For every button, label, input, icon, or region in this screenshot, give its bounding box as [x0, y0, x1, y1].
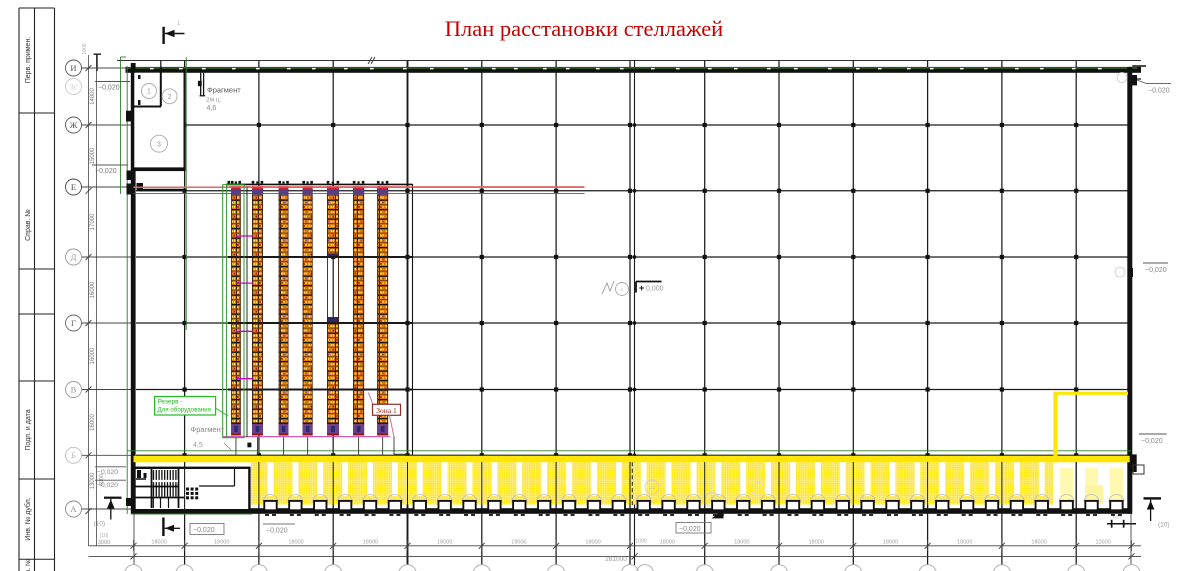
svg-text:Инв. № дубл.: Инв. № дубл. — [24, 497, 32, 540]
svg-text:18000: 18000 — [214, 540, 229, 546]
svg-text:−0,020: −0,020 — [1148, 88, 1170, 95]
svg-text:2м ц.: 2м ц. — [206, 96, 222, 103]
svg-text:Б: Б — [71, 450, 76, 460]
svg-text:3000: 3000 — [98, 540, 110, 546]
svg-text:3: 3 — [157, 141, 161, 148]
svg-text:−0,020: −0,020 — [266, 528, 288, 535]
svg-text:18000: 18000 — [1031, 540, 1046, 546]
svg-text:−0,020: −0,020 — [97, 482, 118, 489]
svg-text:18000: 18000 — [437, 540, 452, 546]
svg-text:15000: 15000 — [90, 147, 96, 164]
svg-text:Ж: Ж — [70, 120, 78, 130]
svg-text:2: 2 — [168, 94, 172, 101]
svg-text:1,2: 1,2 — [649, 485, 656, 490]
svg-text:−0,020: −0,020 — [95, 168, 117, 175]
svg-text:1: 1 — [147, 89, 151, 96]
svg-text:Инв. №: Инв. № — [25, 559, 32, 571]
svg-text:(10): (10) — [100, 533, 109, 539]
svg-text:−0,020: −0,020 — [97, 469, 118, 476]
svg-text:Подп. и дата: Подп. и дата — [25, 409, 32, 450]
svg-text:4,6: 4,6 — [207, 105, 217, 112]
svg-text:Е: Е — [71, 182, 76, 192]
svg-text:18000: 18000 — [734, 540, 749, 546]
svg-text:Для оборудования: Для оборудования — [158, 407, 212, 414]
svg-text:В: В — [71, 384, 77, 394]
svg-text:18000: 18000 — [585, 540, 600, 546]
svg-text:261000: 261000 — [605, 556, 627, 563]
svg-text:Перв. примен.: Перв. примен. — [25, 37, 32, 84]
svg-text:−0,020: −0,020 — [1141, 438, 1163, 445]
svg-text:18000: 18000 — [151, 540, 166, 546]
svg-text:18000: 18000 — [883, 540, 898, 546]
svg-text:−0,020: −0,020 — [1145, 267, 1167, 274]
svg-text:+: + — [639, 283, 644, 293]
svg-text:Справ. №: Справ. № — [25, 209, 32, 241]
svg-text:1000: 1000 — [635, 539, 647, 545]
svg-text:План расстановки стеллажей: План расстановки стеллажей — [445, 16, 723, 41]
svg-text:И: И — [70, 63, 76, 73]
svg-text:18000: 18000 — [660, 540, 675, 546]
svg-text:18000: 18000 — [363, 540, 378, 546]
svg-text:Зс: Зс — [69, 81, 77, 91]
svg-text:12000: 12000 — [1095, 540, 1110, 546]
svg-text:(10): (10) — [94, 521, 106, 528]
svg-text:16000: 16000 — [90, 347, 96, 364]
svg-text:Резерв -: Резерв - — [158, 399, 183, 406]
svg-text:16000: 16000 — [90, 413, 96, 430]
svg-text:14000: 14000 — [90, 87, 96, 104]
svg-text:−0,020: −0,020 — [193, 527, 215, 534]
svg-text:18000: 18000 — [288, 540, 303, 546]
svg-text:А: А — [70, 504, 77, 514]
svg-text:18000: 18000 — [809, 540, 824, 546]
svg-text:16000: 16000 — [90, 281, 96, 298]
svg-text:18000: 18000 — [957, 540, 972, 546]
svg-text:Фрагмент: Фрагмент — [207, 86, 241, 95]
svg-text:−0,020: −0,020 — [98, 85, 120, 92]
svg-text:Г: Г — [71, 318, 76, 328]
svg-text:1000: 1000 — [82, 43, 88, 54]
svg-text:4,5: 4,5 — [193, 442, 203, 449]
svg-text:13000: 13000 — [90, 472, 96, 489]
svg-text:Зона 1: Зона 1 — [376, 406, 397, 415]
svg-text:17000: 17000 — [90, 213, 96, 230]
svg-text:Д: Д — [71, 252, 77, 262]
svg-text:0,000: 0,000 — [646, 286, 664, 293]
svg-text:(10): (10) — [1158, 522, 1170, 529]
svg-text:Фрагмент: Фрагмент — [191, 425, 225, 434]
svg-text:18000: 18000 — [511, 540, 526, 546]
svg-text:−0,020: −0,020 — [679, 526, 701, 533]
